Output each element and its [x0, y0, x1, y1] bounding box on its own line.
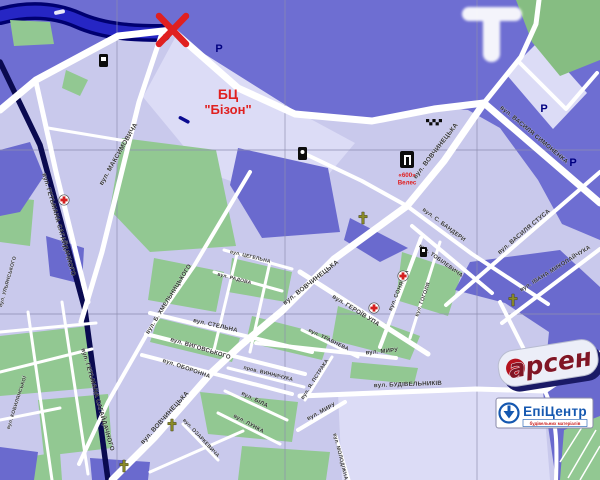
veles-label-line1: «600»	[398, 172, 416, 179]
epicentr-logo: ЕпіЦентр будівельних матеріалів	[496, 398, 593, 428]
green-area	[10, 20, 54, 46]
bizon-label-line1: БЦ	[218, 86, 239, 102]
veles-store-icon	[400, 151, 414, 168]
zone-dark-block	[0, 447, 38, 480]
shop-icon	[298, 147, 307, 160]
bizon-label-line2: "Бізон"	[204, 102, 251, 117]
medical-cross-icon	[369, 303, 379, 313]
map-viewport: вул. МАКСИМОВИЧАвул. ГЕТЬМАНА САГАЙДАЧНО…	[0, 0, 600, 480]
parking-icon: P	[540, 103, 547, 115]
epicentr-tagline: будівельних матеріалів	[530, 421, 581, 426]
parking-icon: P	[569, 157, 576, 169]
kiosk-icon	[420, 247, 427, 257]
veles-label-line2: Велес	[398, 180, 417, 187]
green-area	[238, 446, 330, 480]
fuel-station-icon	[99, 54, 108, 67]
city-map[interactable]: вул. МАКСИМОВИЧАвул. ГЕТЬМАНА САГАЙДАЧНО…	[0, 0, 600, 480]
epicentr-logo-text: ЕпіЦентр	[523, 404, 587, 419]
parking-icon: P	[215, 43, 222, 55]
medical-cross-icon	[398, 271, 408, 281]
medical-cross-icon	[59, 195, 69, 205]
